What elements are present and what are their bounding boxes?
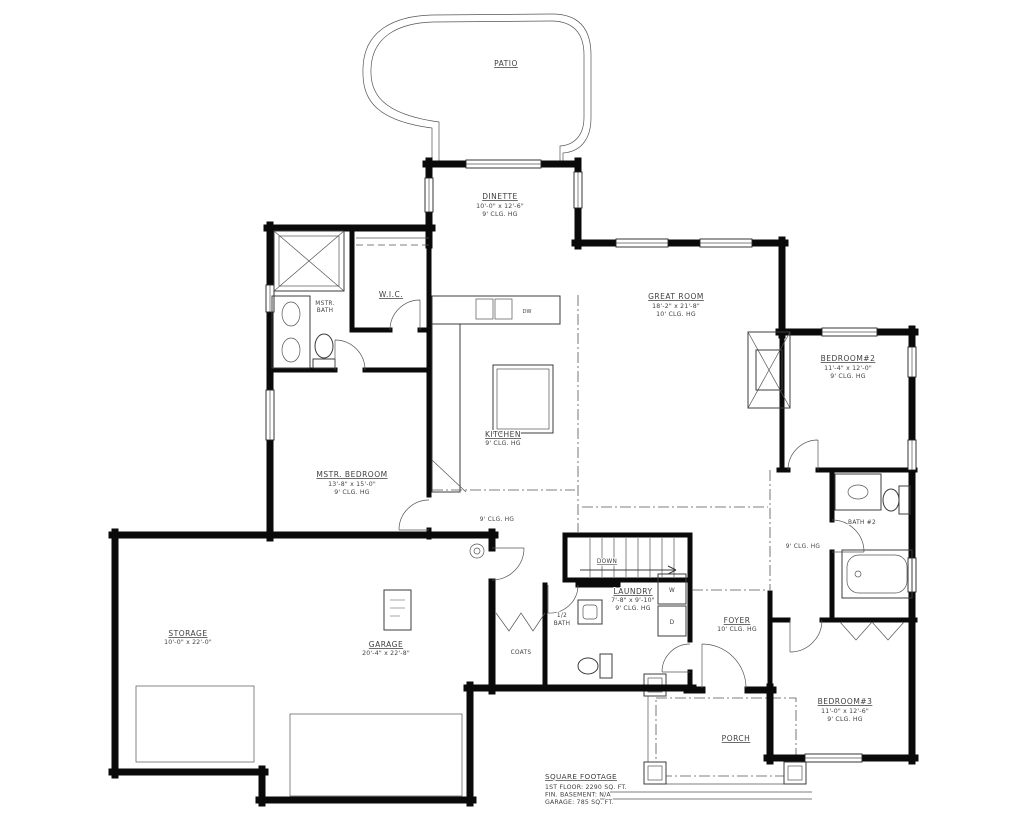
garage-door-bay [136, 686, 254, 762]
square-footage-title: SQUARE FOOTAGE [545, 772, 617, 781]
bedroom3-door [790, 620, 822, 652]
garage-elements [136, 590, 462, 796]
sink-icon [848, 485, 868, 499]
washer-label: W [669, 588, 675, 594]
vanity [272, 296, 310, 368]
stairs [580, 538, 676, 577]
dinette-clg: 9' CLG. HG [482, 211, 518, 218]
foyer-label: FOYER [724, 616, 751, 625]
garage-door-bay [290, 714, 462, 796]
square-footage-basement: FIN. BASEMENT: N/A [545, 792, 611, 799]
master-bath-label-1: MSTR. [315, 301, 334, 307]
great-room-clg: 10' CLG. HG [656, 311, 696, 318]
porch-outline [600, 674, 812, 799]
dinette-dims: 10'-0" x 12'-6" [476, 203, 524, 210]
stair-direction-arrow [580, 566, 676, 574]
window [805, 754, 862, 762]
stairs-down-label: DOWN [597, 559, 617, 565]
bath2-label: BATH #2 [848, 520, 876, 526]
wic-door [390, 300, 420, 330]
master-bath-label-2: BATH [317, 308, 334, 314]
window [266, 390, 274, 440]
patio-outline [363, 14, 591, 162]
door-swings [335, 300, 864, 688]
ceiling-break-lines [432, 295, 770, 590]
sink-icon [282, 302, 300, 326]
coats-bifold [496, 613, 545, 631]
floor-plan-sheet: PATIO DINETTE 10'-0" x 12'-6" 9' CLG. HG… [0, 0, 1024, 819]
kitchen-label: KITCHEN [485, 430, 521, 439]
great-room-label: GREAT ROOM [648, 292, 704, 301]
garage-dims: 20'-4" x 22'-8" [362, 650, 410, 657]
half-bath-label-1: 1/2 [557, 613, 567, 619]
window [266, 285, 274, 312]
master-bedroom-clg: 9' CLG. HG [334, 489, 370, 496]
laundry-dims: 7'-8" x 9'-10" [611, 597, 655, 604]
laundry-door [662, 644, 690, 672]
bath2-fixtures [835, 474, 912, 598]
window [425, 178, 433, 212]
floor-plan-drawing: PATIO DINETTE 10'-0" x 12'-6" 9' CLG. HG… [0, 0, 1024, 819]
bedroom2-door [788, 440, 818, 470]
kitchen-fixtures [432, 296, 560, 492]
front-door [702, 644, 746, 688]
square-footage-garage: GARAGE: 785 SQ. FT. [545, 799, 614, 806]
window [822, 328, 877, 336]
master-bedroom-dims: 13'-8" x 15'-0" [328, 481, 376, 488]
master-bedroom-label: MSTR. BEDROOM [316, 470, 387, 479]
dryer-label: D [670, 620, 675, 626]
corner-pantry [432, 460, 466, 492]
master-bath-door [335, 340, 365, 370]
laundry-fixtures [658, 574, 686, 636]
garage-entry-door [492, 548, 524, 580]
dishwasher-label: DW [523, 309, 532, 315]
dinette-label: DINETTE [482, 192, 518, 201]
toilet-icon [883, 489, 899, 511]
porch-column [784, 762, 806, 784]
window [908, 347, 916, 377]
mechanical-unit [384, 590, 411, 630]
great-room-dims: 18'-2" x 21'-8" [652, 303, 700, 310]
counter [432, 324, 460, 492]
porch-steps [600, 792, 812, 799]
toilet-tank [600, 654, 612, 678]
windows [266, 160, 916, 762]
kitchen-sink [495, 299, 512, 319]
half-bath-fixtures [578, 600, 612, 678]
master-bedroom-door [399, 500, 429, 530]
window [700, 239, 752, 247]
sink-icon [282, 338, 300, 362]
vanity [835, 474, 881, 510]
square-footage-block: SQUARE FOOTAGE 1ST FLOOR: 2290 SQ. FT. F… [545, 772, 627, 806]
storage-dims: 10'-0" x 22'-0" [164, 639, 212, 646]
garage-label: GARAGE [369, 640, 403, 649]
bedroom3-clg: 9' CLG. HG [827, 716, 863, 723]
laundry-clg: 9' CLG. HG [615, 605, 651, 612]
toilet-tank [899, 486, 910, 514]
window [574, 172, 582, 208]
window [616, 239, 668, 247]
laundry-label: LAUNDRY [613, 587, 652, 596]
window [908, 440, 916, 470]
counter [432, 296, 560, 324]
kitchen-clg: 9' CLG. HG [485, 440, 521, 447]
hall-clg-right: 9' CLG. HG [786, 544, 821, 550]
bedroom3-closet-bifold [840, 622, 904, 640]
toilet-icon [315, 334, 333, 358]
symbol-marker [470, 544, 484, 558]
patio-door-window [466, 160, 541, 168]
coats-label: COATS [511, 650, 532, 656]
bedroom2-dims: 11'-4" x 12'-0" [824, 365, 872, 372]
half-bath-label-2: BATH [554, 621, 571, 627]
bedroom2-label: BEDROOM#2 [821, 354, 876, 363]
toilet-icon [578, 658, 598, 674]
porch-label: PORCH [722, 734, 751, 743]
porch-column [644, 762, 666, 784]
island [493, 365, 553, 433]
shower [274, 231, 344, 291]
patio-label: PATIO [494, 59, 518, 68]
kitchen-sink [476, 299, 493, 319]
toilet-tank [313, 359, 335, 368]
bedroom3-label: BEDROOM#3 [818, 697, 873, 706]
square-footage-first-floor: 1ST FLOOR: 2290 SQ. FT. [545, 784, 627, 791]
hall-clg-left: 9' CLG. HG [480, 517, 515, 523]
bedroom2-clg: 9' CLG. HG [830, 373, 866, 380]
bedroom3-dims: 11'-0" x 12'-6" [821, 708, 869, 715]
foyer-clg: 10' CLG. HG [717, 626, 757, 633]
sink-vanity [578, 600, 602, 624]
storage-label: STORAGE [168, 629, 207, 638]
half-bath-door [548, 585, 578, 613]
wic-label: W.I.C. [379, 290, 403, 299]
exterior-walls [112, 161, 915, 803]
